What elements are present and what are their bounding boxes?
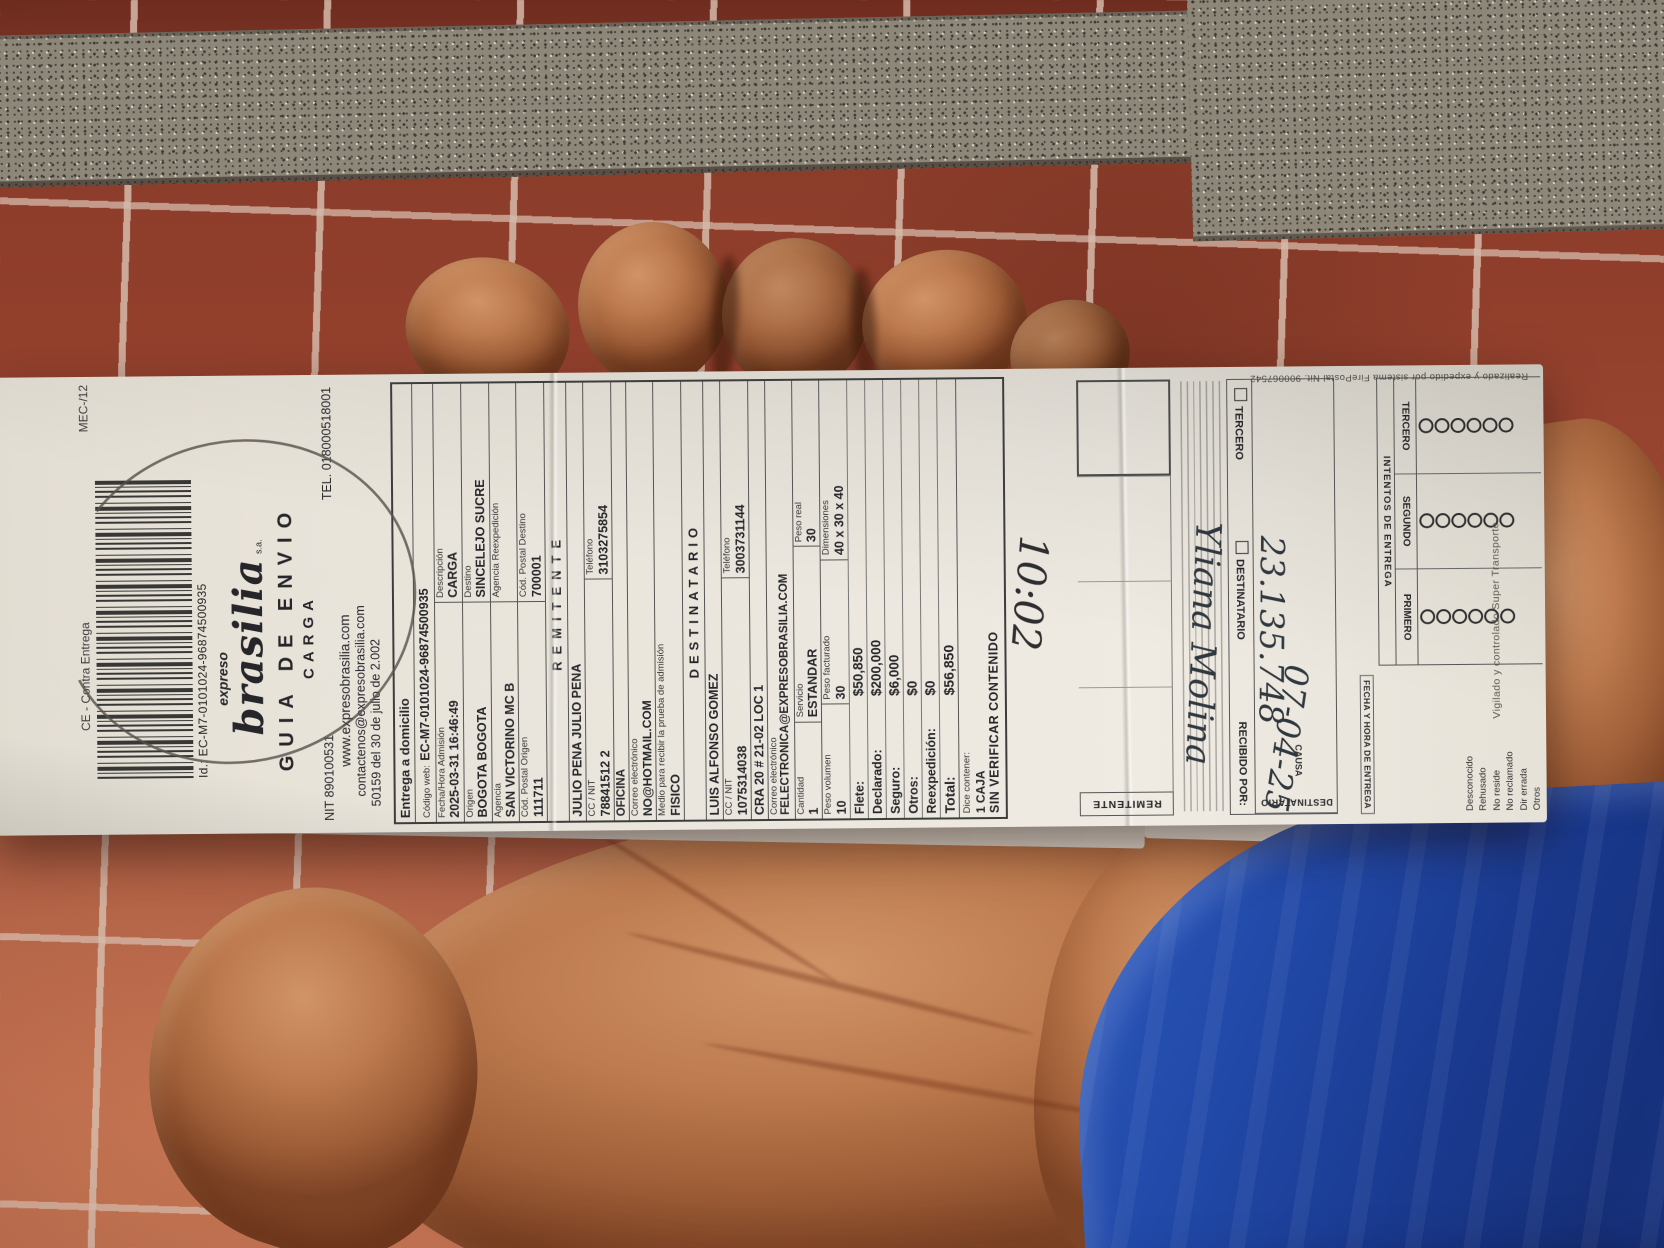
photo-scene: CE - Contra Entrega MEC-/12 Id.: EC-M7-0… <box>0 0 1664 1248</box>
cause-option: Dir errada <box>1517 751 1531 810</box>
field-value: SAN VICTORINO MC B <box>502 602 519 821</box>
cause-circle <box>1418 418 1433 433</box>
cost-value: $56,850 <box>941 645 957 696</box>
checkbox-third-party <box>1234 388 1247 401</box>
field-value: ESTANDAR <box>805 547 822 721</box>
sender-signature-row: REMITENTE <box>1076 379 1174 816</box>
cause-circle <box>1435 514 1450 529</box>
fingertip <box>578 222 728 387</box>
origin-destination-row: OrigenBOGOTA BOGOTA DestinoSINCELEJO SUC… <box>460 383 492 821</box>
attempt-column-headers: PRIMERO SEGUNDO TERCERO <box>1394 377 1419 665</box>
field-value: 700001 <box>528 383 545 601</box>
cost-label: Otros: <box>906 696 921 814</box>
attempts-title: INTENTOS DE ENTREGA <box>1380 456 1392 588</box>
cause-circle <box>1451 513 1466 528</box>
paper-crease <box>548 373 559 831</box>
cause-circle <box>1434 418 1449 433</box>
attempt-circles-second <box>1417 473 1542 570</box>
field-value: 30 <box>832 560 849 704</box>
field-value: CARGA <box>445 384 462 602</box>
cause-circle <box>1450 418 1465 433</box>
regulator-note: Vigilado y controlado Super Transporte <box>1489 522 1503 719</box>
received-option-third-party: TERCERO <box>1232 388 1248 460</box>
option-label: DESTINATARIO <box>1233 559 1246 640</box>
field-value: 3103275854 <box>595 382 612 578</box>
cause-circle <box>1452 609 1467 624</box>
sender-signature-label: REMITENTE <box>1080 791 1174 816</box>
signature-line <box>1077 476 1172 582</box>
contents-disclaimer: SIN VERIFICAR CONTENIDO <box>984 383 1002 813</box>
cause-option: No reclamado <box>1504 751 1518 810</box>
recipient-email-row: Correo electrónico FELECTRONICA@EXPRESOB… <box>764 381 794 819</box>
signature-line <box>1078 581 1173 687</box>
cause-circle <box>1466 418 1481 433</box>
attempt-circles-first <box>1418 569 1543 665</box>
field-value: 1 <box>806 722 822 818</box>
option-label: TERCERO <box>1232 406 1244 460</box>
delivery-section: 10:02 REMITENTE RECIBIDO POR: DESTINATAR… <box>1068 372 1547 818</box>
cost-label: Flete: <box>852 696 867 814</box>
sender-proof-row: Medio para recibir la prueba de admisión… <box>652 382 684 820</box>
field-value: BOGOTA BOGOTA <box>474 602 491 821</box>
receipt-area: CE - Contra Entrega MEC-/12 Id.: EC-M7-0… <box>0 364 1548 836</box>
cause-table-label: CAUSA <box>1293 744 1303 776</box>
delivery-date-label: FECHA Y HORA DE ENTREGA <box>1360 675 1375 814</box>
terrazzo-band-top-right <box>1187 0 1664 242</box>
handwritten-delivery-time: 10:02 <box>1001 534 1056 653</box>
field-value: 3003731144 <box>732 381 749 577</box>
received-by-row: RECIBIDO POR: DESTINATARIO TERCERO <box>1226 379 1256 815</box>
cause-option: Otros <box>1530 751 1544 810</box>
contents-block: Dice contener: 1 CAJA SIN VERIFICAR CONT… <box>955 379 1005 817</box>
cause-circle <box>1498 417 1513 432</box>
cause-options-list: Desconocido Rehusado No reside No reclam… <box>1463 751 1544 811</box>
cost-label: Total: <box>941 695 958 813</box>
sender-signature-lines <box>1077 475 1174 792</box>
cost-value: $0 <box>923 680 938 695</box>
cause-option: Rehusado <box>1477 752 1491 811</box>
shipping-waybill: CE - Contra Entrega MEC-/12 Id.: EC-M7-0… <box>0 364 1547 836</box>
cost-label: Seguro: <box>888 696 903 814</box>
cost-value: $50,850 <box>851 647 866 696</box>
cause-circle <box>1419 514 1434 529</box>
cause-circle <box>1420 609 1435 624</box>
field-label: Cantidad <box>795 722 807 818</box>
package-row-1: Cantidad1 ServicioESTANDAR Peso real30 <box>791 381 823 819</box>
delivery-date-row: FECHA Y HORA DE ENTREGA <box>1354 378 1378 814</box>
attempt-cause-circles <box>1416 376 1543 665</box>
field-value: 40 x 30 x 40 <box>831 380 848 559</box>
cost-value: $6,000 <box>887 655 902 696</box>
agency-row: AgenciaSAN VICTORINO MC B Agencia Reexpe… <box>488 383 520 821</box>
attempt-circles-third <box>1416 377 1541 474</box>
cause-circle <box>1436 609 1451 624</box>
recipient-id-phone-row: CC / NIT1075314038 Teléfono3003731144 <box>719 381 751 819</box>
package-row-2: Peso volumen10 Peso facturado30 Dimensio… <box>818 380 850 818</box>
attempt-third: TERCERO <box>1399 401 1410 450</box>
cause-circle <box>1482 417 1497 432</box>
cause-circle <box>1499 513 1514 528</box>
attempt-first: PRIMERO <box>1401 594 1412 641</box>
field-value: 30 <box>803 381 820 547</box>
field-value: 2025-03-31 16:46:49 <box>446 603 463 822</box>
field-value: 10 <box>834 704 850 818</box>
cost-label: Reexpedición: <box>924 696 939 814</box>
waybill-form: Entrega a domicilio Código web: EC-M7-01… <box>390 377 1007 824</box>
sender-email-row: Correo electrónico NO@HOTMAIL.COM <box>625 382 656 820</box>
field-label: Peso volumen <box>822 705 834 819</box>
attempt-second: SEGUNDO <box>1400 496 1411 547</box>
checkbox-recipient <box>1235 541 1248 554</box>
signature-line <box>1079 686 1174 792</box>
field-value: 111711 <box>530 602 547 821</box>
cause-option: No reside <box>1490 751 1504 810</box>
cost-value: $0 <box>905 681 920 696</box>
terrazzo-band-top <box>0 8 1311 188</box>
cause-circle <box>1500 609 1515 624</box>
pen-circle-mark <box>46 410 439 793</box>
cause-circle <box>1467 513 1482 528</box>
sender-id-phone-row: CC / NIT78841512 2 Teléfono3103275854 <box>582 382 614 820</box>
cost-value: $200,000 <box>869 640 884 696</box>
cause-circle <box>1468 609 1483 624</box>
postal-codes-row: Cód. Postal Origen111711 Cód. Postal Des… <box>516 383 548 821</box>
received-by-label: RECIBIDO POR: <box>1236 721 1249 805</box>
cause-option: Desconocido <box>1463 752 1477 811</box>
cost-label: Declarado: <box>870 696 885 814</box>
received-option-recipient: DESTINATARIO <box>1233 541 1249 640</box>
signature-box <box>1076 379 1171 476</box>
field-value: 78841512 2 <box>597 579 614 820</box>
field-value: 1075314038 <box>733 578 750 819</box>
field-value: SINCELEJO SUCRE <box>472 383 489 601</box>
